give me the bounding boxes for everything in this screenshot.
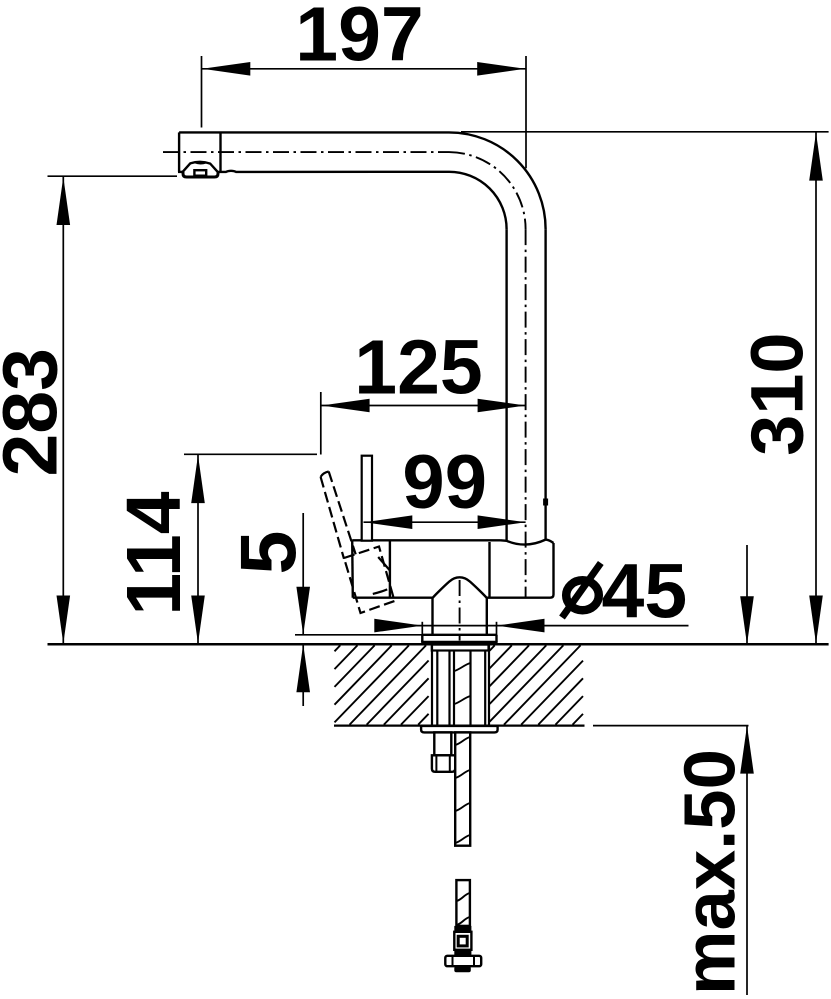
svg-text:125: 125 [354, 325, 482, 411]
svg-text:max.50: max.50 [670, 749, 751, 995]
svg-text:99: 99 [402, 440, 487, 525]
svg-text:310: 310 [736, 332, 819, 455]
svg-text:283: 283 [0, 348, 74, 476]
svg-text:45: 45 [602, 549, 688, 635]
svg-text:5: 5 [223, 531, 312, 575]
svg-text:114: 114 [111, 491, 197, 615]
svg-text:197: 197 [295, 0, 423, 78]
